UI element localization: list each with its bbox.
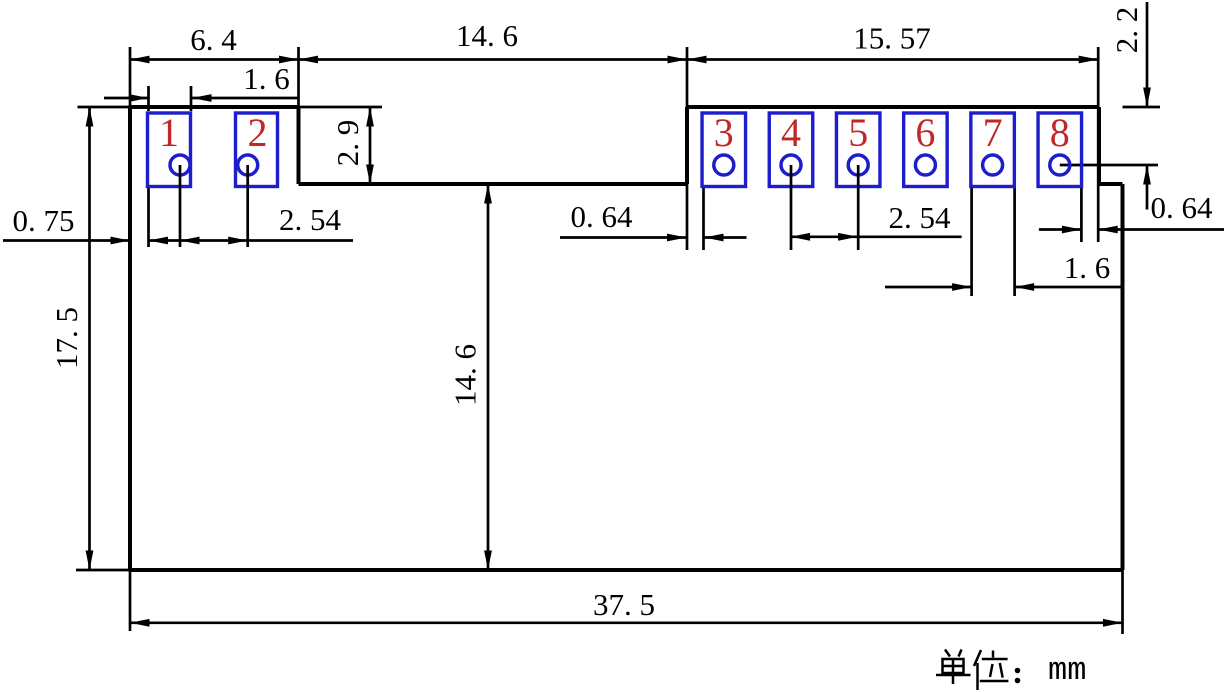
- svg-text:6. 4: 6. 4: [190, 22, 237, 57]
- svg-text:2: 2: [248, 110, 268, 155]
- svg-text:37. 5: 37. 5: [593, 587, 655, 622]
- svg-text:0. 64: 0. 64: [571, 199, 634, 234]
- svg-text:mm: mm: [1048, 652, 1086, 689]
- svg-text:2. 54: 2. 54: [279, 202, 342, 237]
- svg-text:1. 6: 1. 6: [243, 61, 290, 96]
- svg-text:8: 8: [1050, 110, 1070, 155]
- svg-text:0. 75: 0. 75: [13, 203, 75, 238]
- svg-text:2. 54: 2. 54: [889, 200, 952, 235]
- svg-text:0. 64: 0. 64: [1151, 190, 1214, 225]
- svg-text:15. 57: 15. 57: [853, 21, 931, 56]
- svg-text:6: 6: [915, 110, 935, 155]
- svg-text:4: 4: [781, 110, 801, 155]
- svg-text:5: 5: [848, 110, 868, 155]
- svg-text:14. 6: 14. 6: [456, 18, 518, 53]
- svg-text:7: 7: [983, 110, 1003, 155]
- svg-text:2. 9: 2. 9: [330, 120, 365, 167]
- svg-text:3: 3: [714, 110, 734, 155]
- svg-text:1: 1: [159, 110, 179, 155]
- svg-text:17. 5: 17. 5: [49, 307, 84, 369]
- svg-text:1. 6: 1. 6: [1064, 250, 1111, 285]
- svg-text:2. 2: 2. 2: [1109, 7, 1144, 54]
- svg-text:14. 6: 14. 6: [448, 344, 483, 406]
